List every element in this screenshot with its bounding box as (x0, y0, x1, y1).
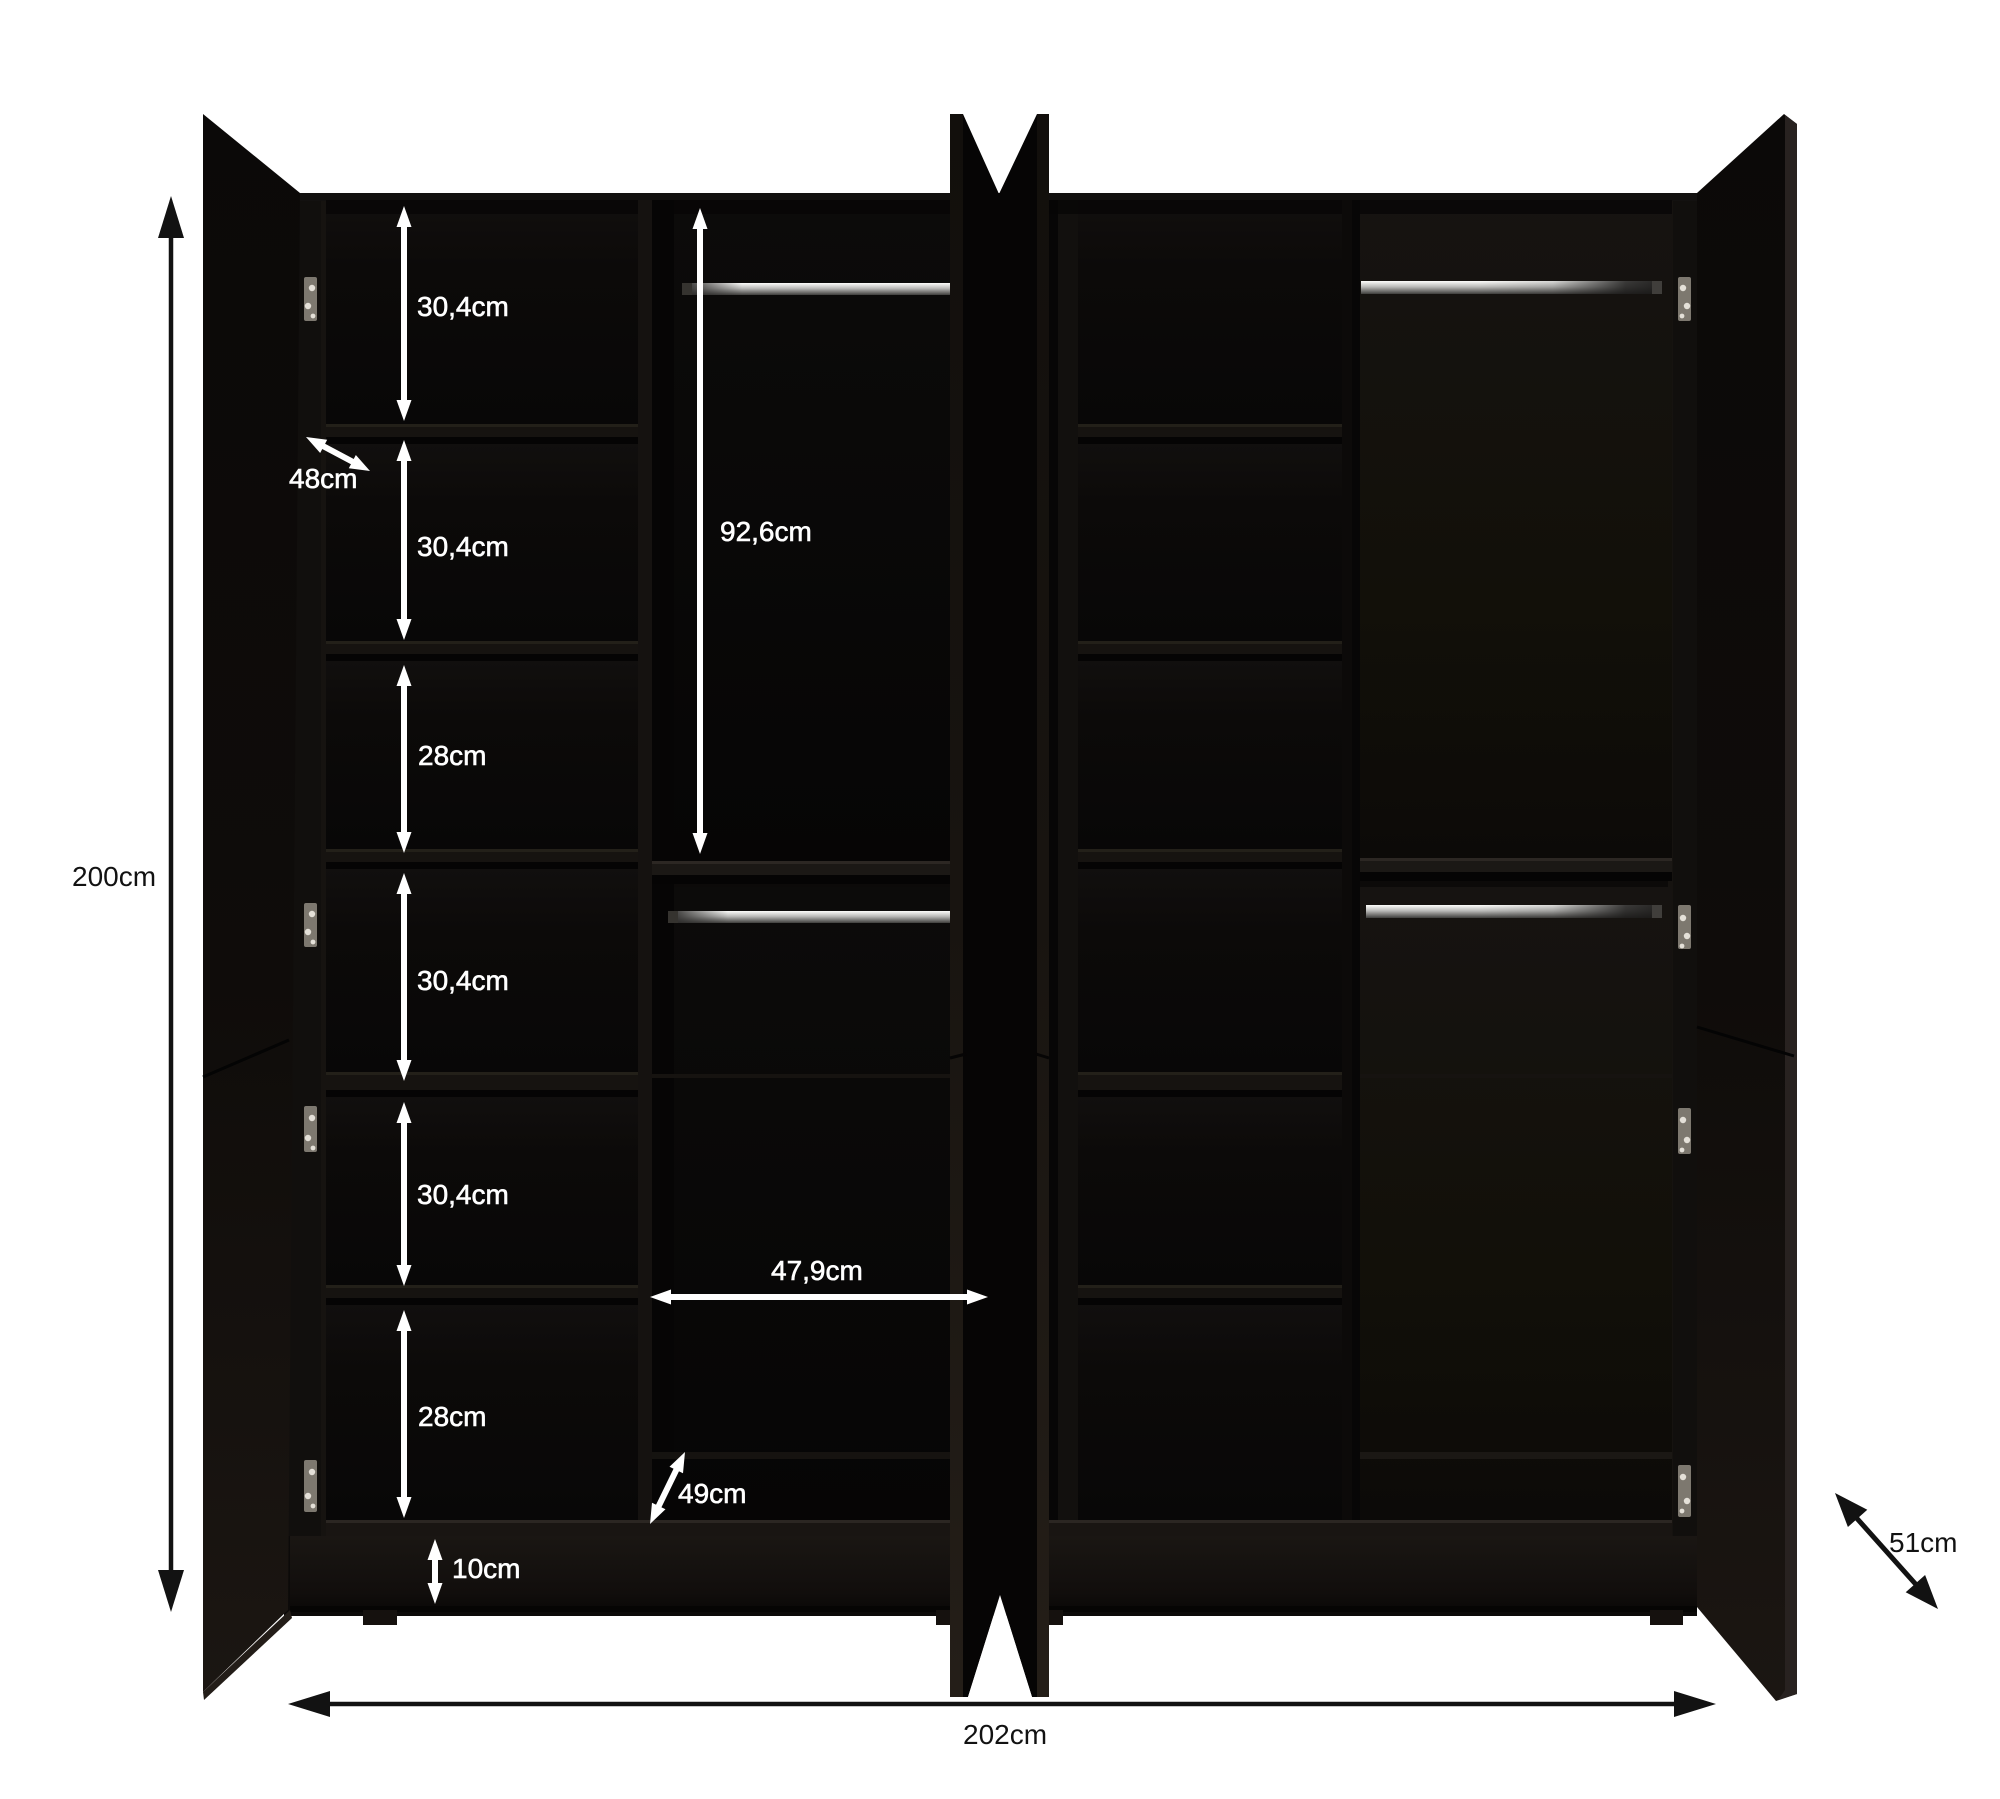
svg-text:47,9cm: 47,9cm (771, 1255, 863, 1286)
svg-text:30,4cm: 30,4cm (417, 291, 509, 322)
svg-text:202cm: 202cm (963, 1719, 1047, 1750)
svg-text:28cm: 28cm (418, 740, 486, 771)
svg-text:48cm: 48cm (289, 463, 357, 494)
svg-text:28cm: 28cm (418, 1401, 486, 1432)
svg-text:200cm: 200cm (72, 861, 156, 892)
svg-text:51cm: 51cm (1889, 1527, 1957, 1558)
svg-text:30,4cm: 30,4cm (417, 531, 509, 562)
svg-text:30,4cm: 30,4cm (417, 965, 509, 996)
svg-text:10cm: 10cm (452, 1553, 520, 1584)
svg-text:92,6cm: 92,6cm (720, 516, 812, 547)
svg-text:30,4cm: 30,4cm (417, 1179, 509, 1210)
svg-text:49cm: 49cm (678, 1478, 746, 1509)
